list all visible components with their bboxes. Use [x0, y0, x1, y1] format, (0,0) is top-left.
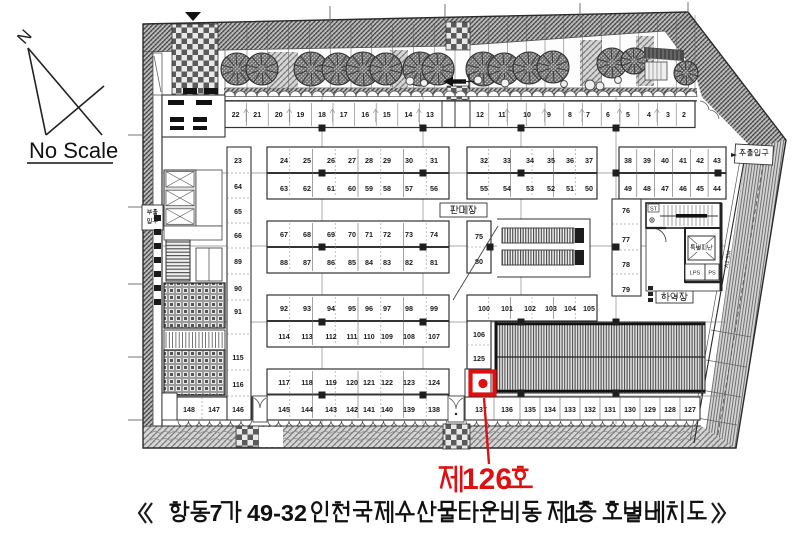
svg-text:16: 16 [361, 112, 369, 119]
svg-text:78: 78 [622, 260, 630, 269]
svg-text:64: 64 [234, 184, 242, 191]
svg-text:37: 37 [585, 156, 593, 165]
svg-text:128: 128 [664, 407, 676, 414]
svg-text:89: 89 [234, 259, 242, 266]
svg-text:95: 95 [348, 304, 356, 313]
svg-text:144: 144 [301, 405, 313, 414]
svg-text:53: 53 [526, 184, 534, 193]
svg-text:68: 68 [303, 230, 311, 239]
svg-text:74: 74 [430, 230, 438, 239]
svg-text:90: 90 [234, 286, 242, 293]
svg-text:LPS: LPS [690, 271, 701, 277]
svg-text:46: 46 [679, 186, 687, 193]
svg-text:73: 73 [405, 230, 413, 239]
svg-text:51: 51 [566, 184, 574, 193]
svg-text:45: 45 [696, 186, 704, 193]
svg-text:123: 123 [403, 378, 415, 387]
svg-text:92: 92 [280, 304, 288, 313]
svg-text:147: 147 [208, 407, 220, 414]
svg-text:70: 70 [348, 230, 356, 239]
svg-text:125: 125 [473, 354, 485, 363]
svg-text:57: 57 [405, 184, 413, 193]
svg-text:81: 81 [430, 258, 438, 267]
svg-text:84: 84 [365, 258, 373, 267]
svg-text:122: 122 [381, 378, 393, 387]
svg-text:ST: ST [650, 207, 658, 213]
svg-text:PS: PS [708, 271, 716, 277]
svg-text:38: 38 [624, 158, 632, 165]
svg-text:118: 118 [301, 378, 313, 387]
svg-text:12: 12 [476, 112, 484, 119]
svg-text:7: 7 [586, 112, 590, 119]
svg-text:24: 24 [280, 156, 288, 165]
svg-text:47: 47 [661, 186, 669, 193]
svg-text:116: 116 [232, 382, 243, 389]
svg-text:114: 114 [278, 334, 289, 341]
svg-text:2: 2 [682, 112, 686, 119]
svg-text:69: 69 [327, 230, 335, 239]
svg-text:41: 41 [679, 158, 687, 165]
svg-text:30: 30 [405, 156, 413, 165]
svg-text:63: 63 [280, 184, 288, 193]
svg-text:29: 29 [383, 156, 391, 165]
svg-text:77: 77 [622, 235, 630, 244]
svg-text:113: 113 [301, 334, 312, 341]
svg-text:139: 139 [403, 405, 415, 414]
svg-text:3: 3 [666, 112, 670, 119]
svg-text:62: 62 [303, 184, 311, 193]
svg-text:20: 20 [275, 112, 283, 119]
svg-text:148: 148 [183, 407, 195, 414]
svg-text:117: 117 [278, 378, 290, 387]
svg-text:14: 14 [405, 112, 413, 119]
svg-text:99: 99 [430, 304, 438, 313]
svg-text:119: 119 [325, 378, 337, 387]
svg-text:101: 101 [501, 306, 513, 313]
svg-text:83: 83 [383, 258, 391, 267]
svg-text:40: 40 [661, 158, 669, 165]
svg-text:27: 27 [348, 156, 356, 165]
svg-text:127: 127 [684, 407, 696, 414]
svg-text:34: 34 [526, 156, 534, 165]
svg-text:49-32: 49-32 [247, 500, 307, 526]
svg-text:97: 97 [383, 304, 391, 313]
svg-text:61: 61 [327, 184, 335, 193]
svg-text:140: 140 [381, 405, 393, 414]
svg-text:58: 58 [383, 184, 391, 193]
svg-text:19: 19 [297, 112, 305, 119]
svg-text:39: 39 [643, 158, 651, 165]
svg-text:136: 136 [501, 407, 513, 414]
svg-text:10: 10 [523, 112, 531, 119]
svg-text:76: 76 [622, 206, 630, 215]
svg-text:7: 7 [210, 500, 223, 526]
svg-text:36: 36 [566, 156, 574, 165]
svg-text:22: 22 [232, 112, 240, 119]
svg-text:111: 111 [347, 334, 358, 341]
svg-text:4: 4 [647, 112, 651, 119]
svg-text:142: 142 [346, 405, 358, 414]
svg-text:9: 9 [547, 112, 551, 119]
svg-text:71: 71 [365, 230, 373, 239]
svg-text:65: 65 [234, 209, 242, 216]
svg-text:25: 25 [303, 156, 311, 165]
svg-text:98: 98 [405, 304, 413, 313]
svg-text:48: 48 [643, 186, 651, 193]
svg-text:88: 88 [280, 258, 288, 267]
svg-text:141: 141 [363, 405, 375, 414]
svg-text:96: 96 [365, 304, 373, 313]
svg-text:44: 44 [713, 186, 721, 193]
svg-text:129: 129 [644, 407, 656, 414]
svg-text:31: 31 [430, 156, 438, 165]
svg-text:6: 6 [606, 112, 610, 119]
svg-text:32: 32 [480, 156, 488, 165]
svg-text:135: 135 [524, 407, 536, 414]
svg-text:102: 102 [524, 306, 536, 313]
svg-text:75: 75 [475, 232, 483, 241]
svg-text:60: 60 [348, 184, 356, 193]
svg-text:50: 50 [585, 184, 593, 193]
svg-text:21: 21 [253, 112, 261, 119]
svg-text:72: 72 [383, 230, 391, 239]
svg-text:108: 108 [403, 334, 415, 341]
svg-text:93: 93 [303, 304, 311, 313]
svg-text:91: 91 [234, 309, 242, 316]
svg-text:124: 124 [428, 378, 440, 387]
svg-text:26: 26 [327, 156, 335, 165]
svg-text:66: 66 [234, 233, 242, 240]
svg-text:8: 8 [568, 112, 572, 119]
svg-text:134: 134 [544, 407, 556, 414]
svg-text:54: 54 [503, 184, 511, 193]
svg-text:79: 79 [622, 285, 630, 294]
svg-text:49: 49 [624, 186, 632, 193]
svg-text:18: 18 [318, 112, 326, 119]
svg-text:43: 43 [713, 158, 721, 165]
svg-text:103: 103 [545, 306, 557, 313]
svg-text:28: 28 [365, 156, 373, 165]
svg-text:55: 55 [480, 184, 488, 193]
svg-text:13: 13 [426, 112, 434, 119]
svg-text:1: 1 [566, 500, 579, 526]
svg-text:87: 87 [303, 258, 311, 267]
svg-text:33: 33 [503, 156, 511, 165]
svg-text:100: 100 [478, 306, 490, 313]
svg-text:No Scale: No Scale [29, 138, 118, 163]
svg-text:107: 107 [428, 334, 440, 341]
svg-text:35: 35 [547, 156, 555, 165]
svg-text:52: 52 [547, 184, 555, 193]
svg-text:146: 146 [232, 407, 244, 414]
svg-text:109: 109 [381, 334, 393, 341]
svg-text:132: 132 [584, 407, 596, 414]
svg-text:112: 112 [325, 334, 336, 341]
svg-text:104: 104 [564, 306, 576, 313]
svg-text:131: 131 [604, 407, 616, 414]
svg-text:42: 42 [696, 158, 704, 165]
svg-text:145: 145 [278, 405, 290, 414]
svg-text:133: 133 [564, 407, 576, 414]
svg-text:143: 143 [325, 405, 337, 414]
svg-text:106: 106 [473, 330, 485, 339]
svg-text:130: 130 [624, 407, 636, 414]
svg-text:85: 85 [348, 258, 356, 267]
svg-text:120: 120 [346, 378, 358, 387]
svg-text:110: 110 [363, 334, 374, 341]
svg-text:56: 56 [430, 184, 438, 193]
svg-text:67: 67 [280, 230, 288, 239]
svg-text:15: 15 [383, 112, 391, 119]
svg-text:126: 126 [462, 463, 512, 496]
svg-text:59: 59 [365, 184, 373, 193]
svg-text:121: 121 [363, 378, 375, 387]
svg-text:86: 86 [327, 258, 335, 267]
svg-text:115: 115 [232, 355, 243, 362]
svg-text:105: 105 [583, 306, 595, 313]
svg-text:82: 82 [405, 258, 413, 267]
svg-text:17: 17 [340, 112, 348, 119]
svg-text:94: 94 [327, 304, 335, 313]
svg-text:23: 23 [234, 158, 242, 165]
svg-text:5: 5 [626, 112, 630, 119]
svg-text:138: 138 [428, 405, 440, 414]
